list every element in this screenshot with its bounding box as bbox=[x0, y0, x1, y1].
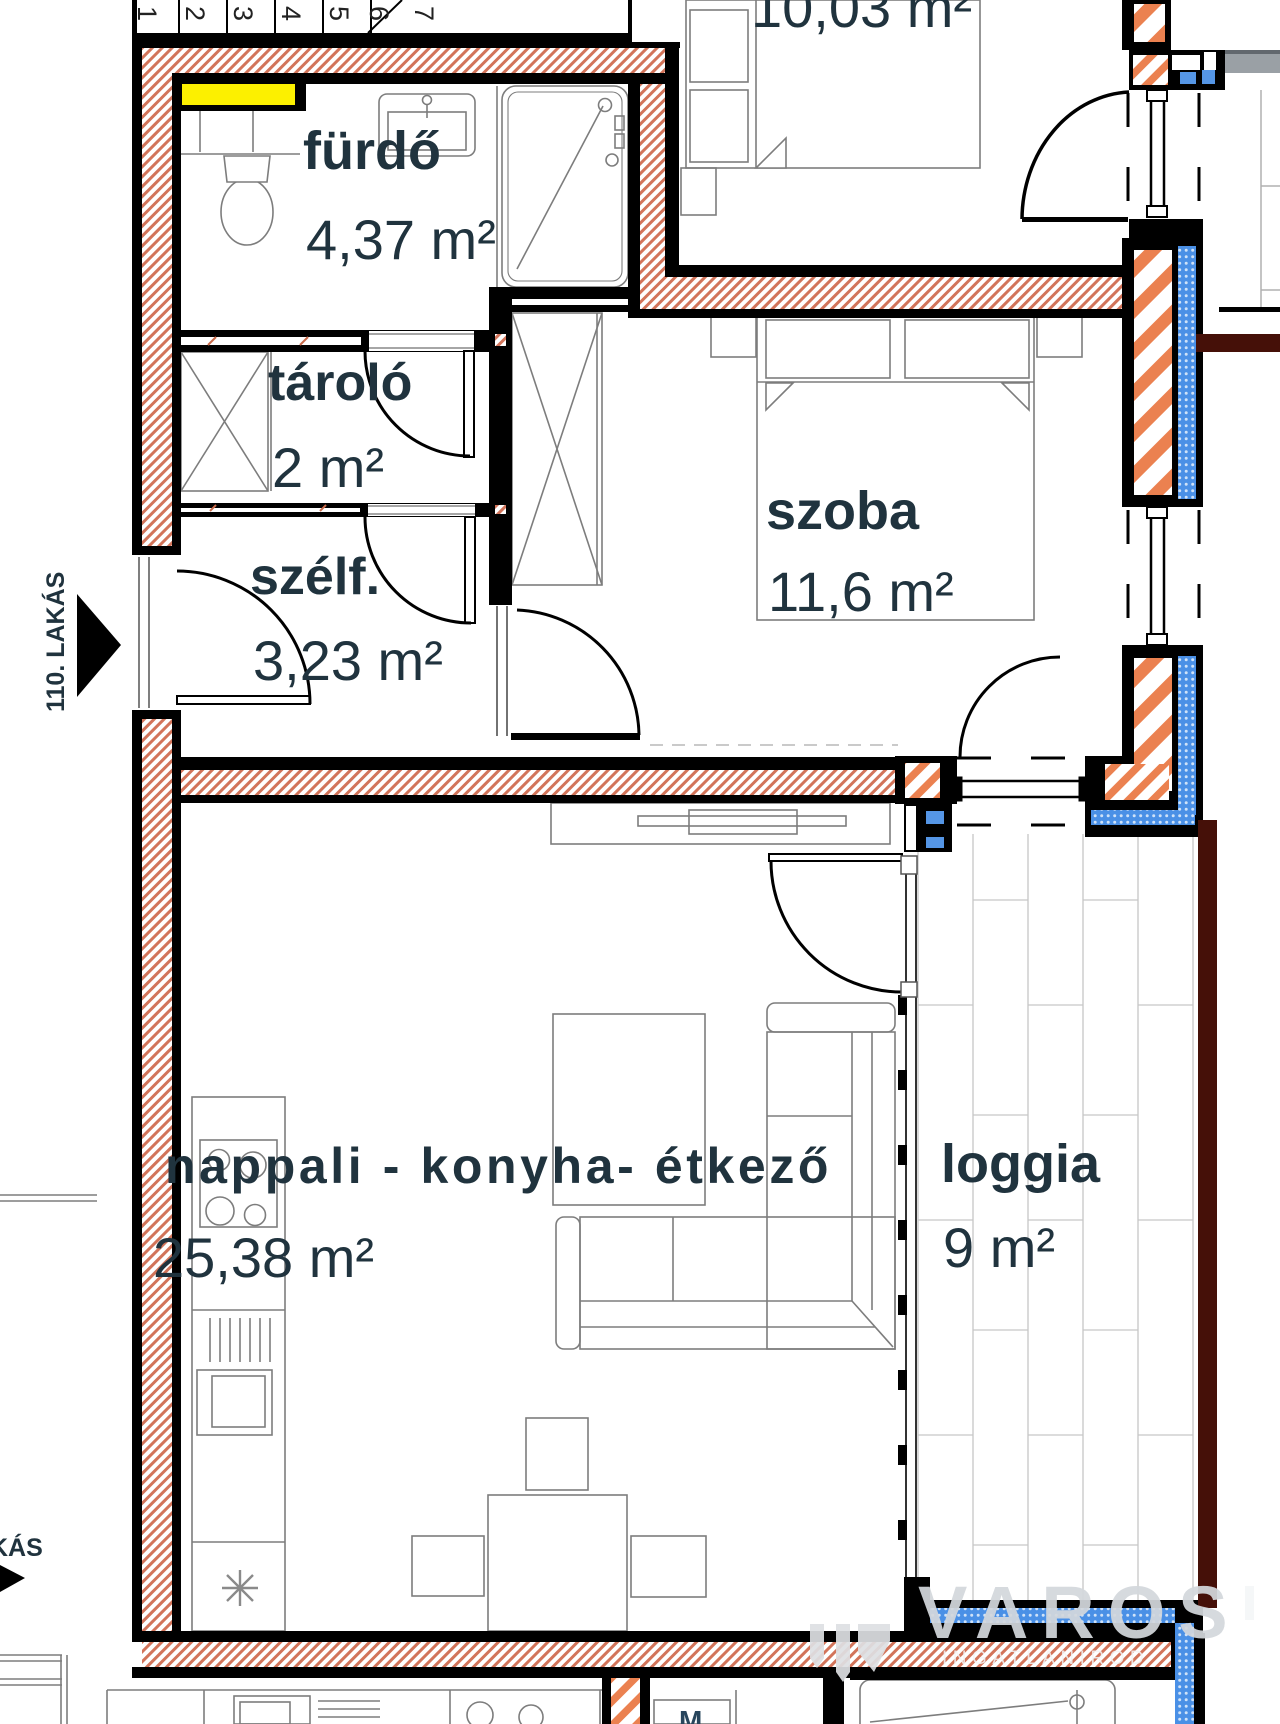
svg-text:1: 1 bbox=[132, 6, 162, 21]
svg-text:9 m²: 9 m² bbox=[943, 1216, 1055, 1279]
svg-text:szoba: szoba bbox=[766, 481, 920, 541]
svg-text:fürdő: fürdő bbox=[303, 121, 441, 181]
svg-text:tároló: tároló bbox=[268, 354, 412, 412]
svg-text:loggia: loggia bbox=[941, 1134, 1101, 1194]
svg-text:10,03 m²: 10,03 m² bbox=[751, 0, 972, 39]
svg-text:11,6 m²: 11,6 m² bbox=[768, 560, 954, 623]
svg-text:6: 6 bbox=[364, 6, 394, 21]
svg-text:2: 2 bbox=[180, 6, 210, 21]
svg-text:4: 4 bbox=[276, 6, 306, 21]
svg-text:nappali - konyha- étkező: nappali - konyha- étkező bbox=[165, 1138, 832, 1194]
svg-text:3,23 m²: 3,23 m² bbox=[253, 629, 443, 692]
svg-text:7: 7 bbox=[409, 6, 439, 21]
svg-text:3: 3 bbox=[228, 6, 258, 21]
svg-text:4,37 m²: 4,37 m² bbox=[306, 208, 496, 271]
svg-text:110. LAKÁS: 110. LAKÁS bbox=[41, 572, 70, 712]
svg-text:25,38 m²: 25,38 m² bbox=[153, 1226, 374, 1289]
svg-text:2 m²: 2 m² bbox=[272, 436, 384, 499]
svg-text:KÁS: KÁS bbox=[0, 1533, 43, 1562]
svg-text:5: 5 bbox=[324, 6, 354, 21]
svg-text:M: M bbox=[679, 1705, 702, 1724]
svg-text:VAROS: VAROS bbox=[918, 1571, 1241, 1654]
svg-text:INGATLANIROD: INGATLANIROD bbox=[942, 1648, 1149, 1669]
svg-text:szélf.: szélf. bbox=[250, 548, 380, 606]
